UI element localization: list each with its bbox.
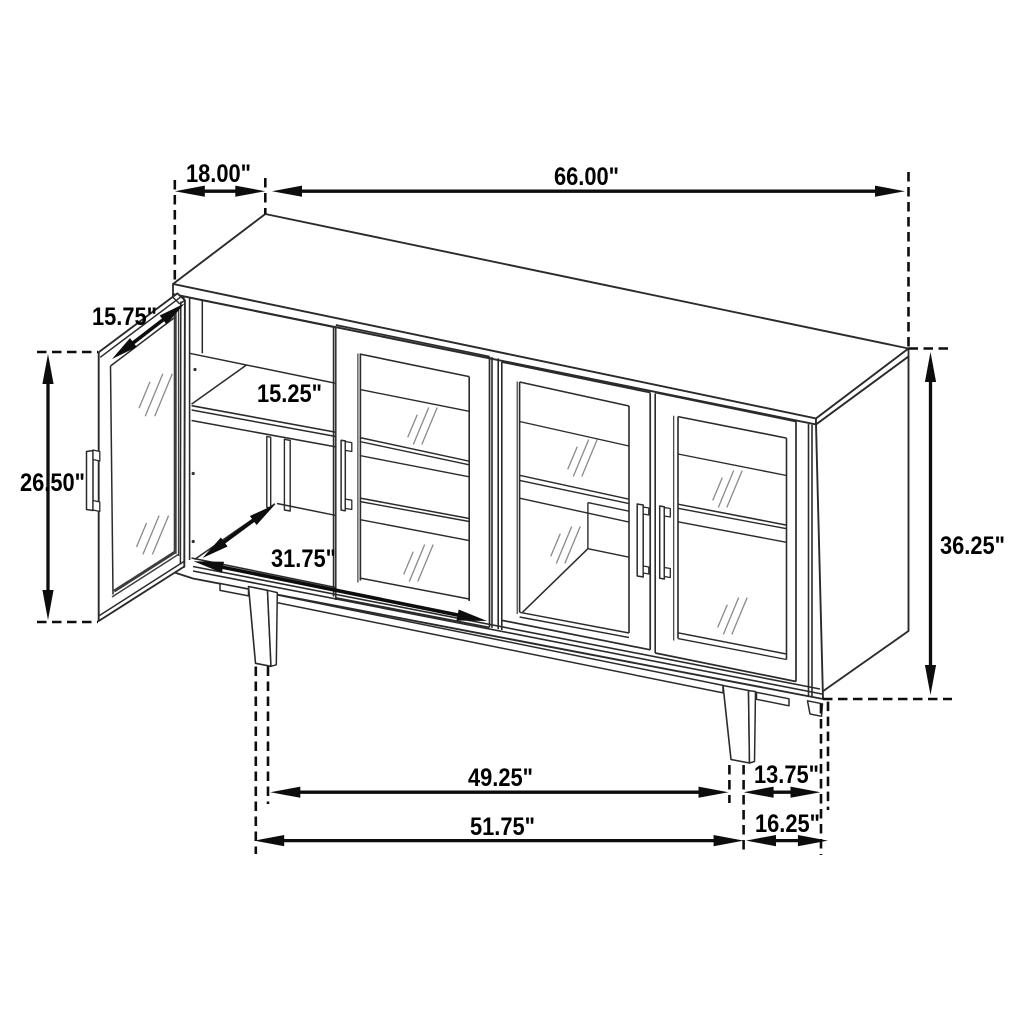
svg-text:26.50": 26.50" (20, 469, 85, 497)
svg-text:49.25": 49.25" (468, 764, 533, 792)
svg-text:15.75": 15.75" (92, 303, 157, 331)
svg-text:66.00": 66.00" (554, 163, 619, 191)
svg-text:15.25": 15.25" (257, 380, 322, 408)
svg-text:36.25": 36.25" (940, 532, 1005, 560)
svg-text:18.00": 18.00" (186, 160, 251, 188)
svg-text:31.75": 31.75" (271, 545, 336, 573)
svg-text:16.25": 16.25" (755, 810, 820, 838)
svg-text:13.75": 13.75" (754, 761, 819, 789)
svg-text:51.75": 51.75" (470, 813, 535, 841)
